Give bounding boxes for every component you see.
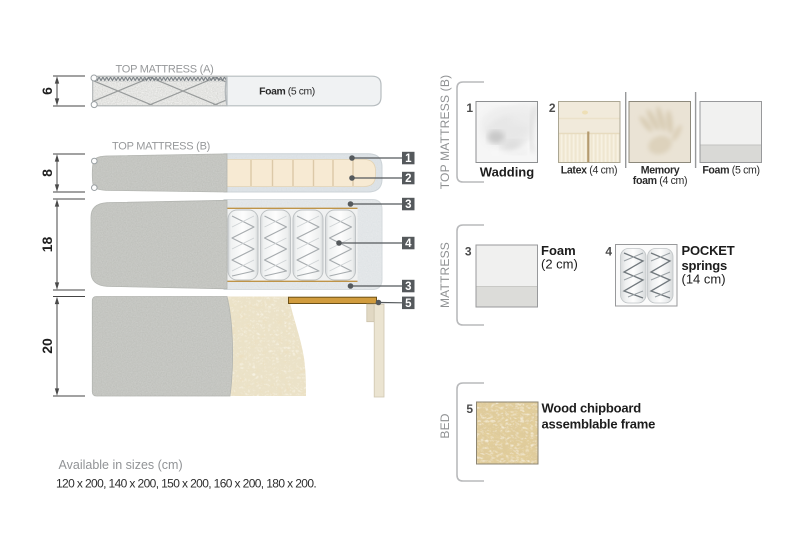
svg-text:20: 20 [39, 338, 55, 354]
svg-text:(14 cm): (14 cm) [682, 271, 726, 286]
svg-text:BED: BED [438, 413, 452, 438]
svg-text:5: 5 [466, 402, 473, 416]
svg-text:3: 3 [405, 281, 411, 293]
svg-text:Wadding: Wadding [480, 165, 534, 180]
svg-text:4: 4 [405, 238, 412, 250]
svg-text:Foam (5 cm): Foam (5 cm) [259, 86, 315, 97]
svg-text:MATTRESS: MATTRESS [438, 242, 452, 308]
svg-text:5: 5 [405, 298, 412, 310]
svg-text:1: 1 [466, 101, 473, 115]
svg-text:6: 6 [39, 87, 55, 95]
svg-text:4: 4 [605, 245, 612, 259]
svg-text:foam (4 cm): foam (4 cm) [633, 175, 687, 187]
svg-text:3: 3 [465, 245, 472, 259]
svg-text:120 x 200, 140 x 200, 150 x 20: 120 x 200, 140 x 200, 150 x 200, 160 x 2… [56, 477, 316, 491]
svg-text:Wood chipboard: Wood chipboard [542, 400, 642, 415]
svg-text:POCKET: POCKET [682, 243, 735, 258]
svg-text:Available in sizes (cm): Available in sizes (cm) [59, 458, 183, 472]
svg-text:2: 2 [549, 101, 556, 115]
svg-text:TOP MATTRESS (A): TOP MATTRESS (A) [116, 64, 214, 76]
svg-text:1: 1 [405, 153, 412, 165]
svg-text:2: 2 [405, 173, 411, 185]
svg-text:assemblable frame: assemblable frame [542, 416, 656, 431]
svg-text:8: 8 [39, 169, 55, 177]
svg-text:TOP MATTRESS (B): TOP MATTRESS (B) [112, 141, 210, 153]
svg-text:TOP MATTRESS (B): TOP MATTRESS (B) [438, 75, 452, 190]
svg-text:Latex (4 cm): Latex (4 cm) [561, 165, 617, 177]
svg-text:Foam (5 cm): Foam (5 cm) [702, 165, 759, 177]
svg-text:18: 18 [39, 237, 55, 253]
svg-text:3: 3 [405, 199, 411, 211]
svg-text:(2 cm): (2 cm) [541, 256, 578, 271]
